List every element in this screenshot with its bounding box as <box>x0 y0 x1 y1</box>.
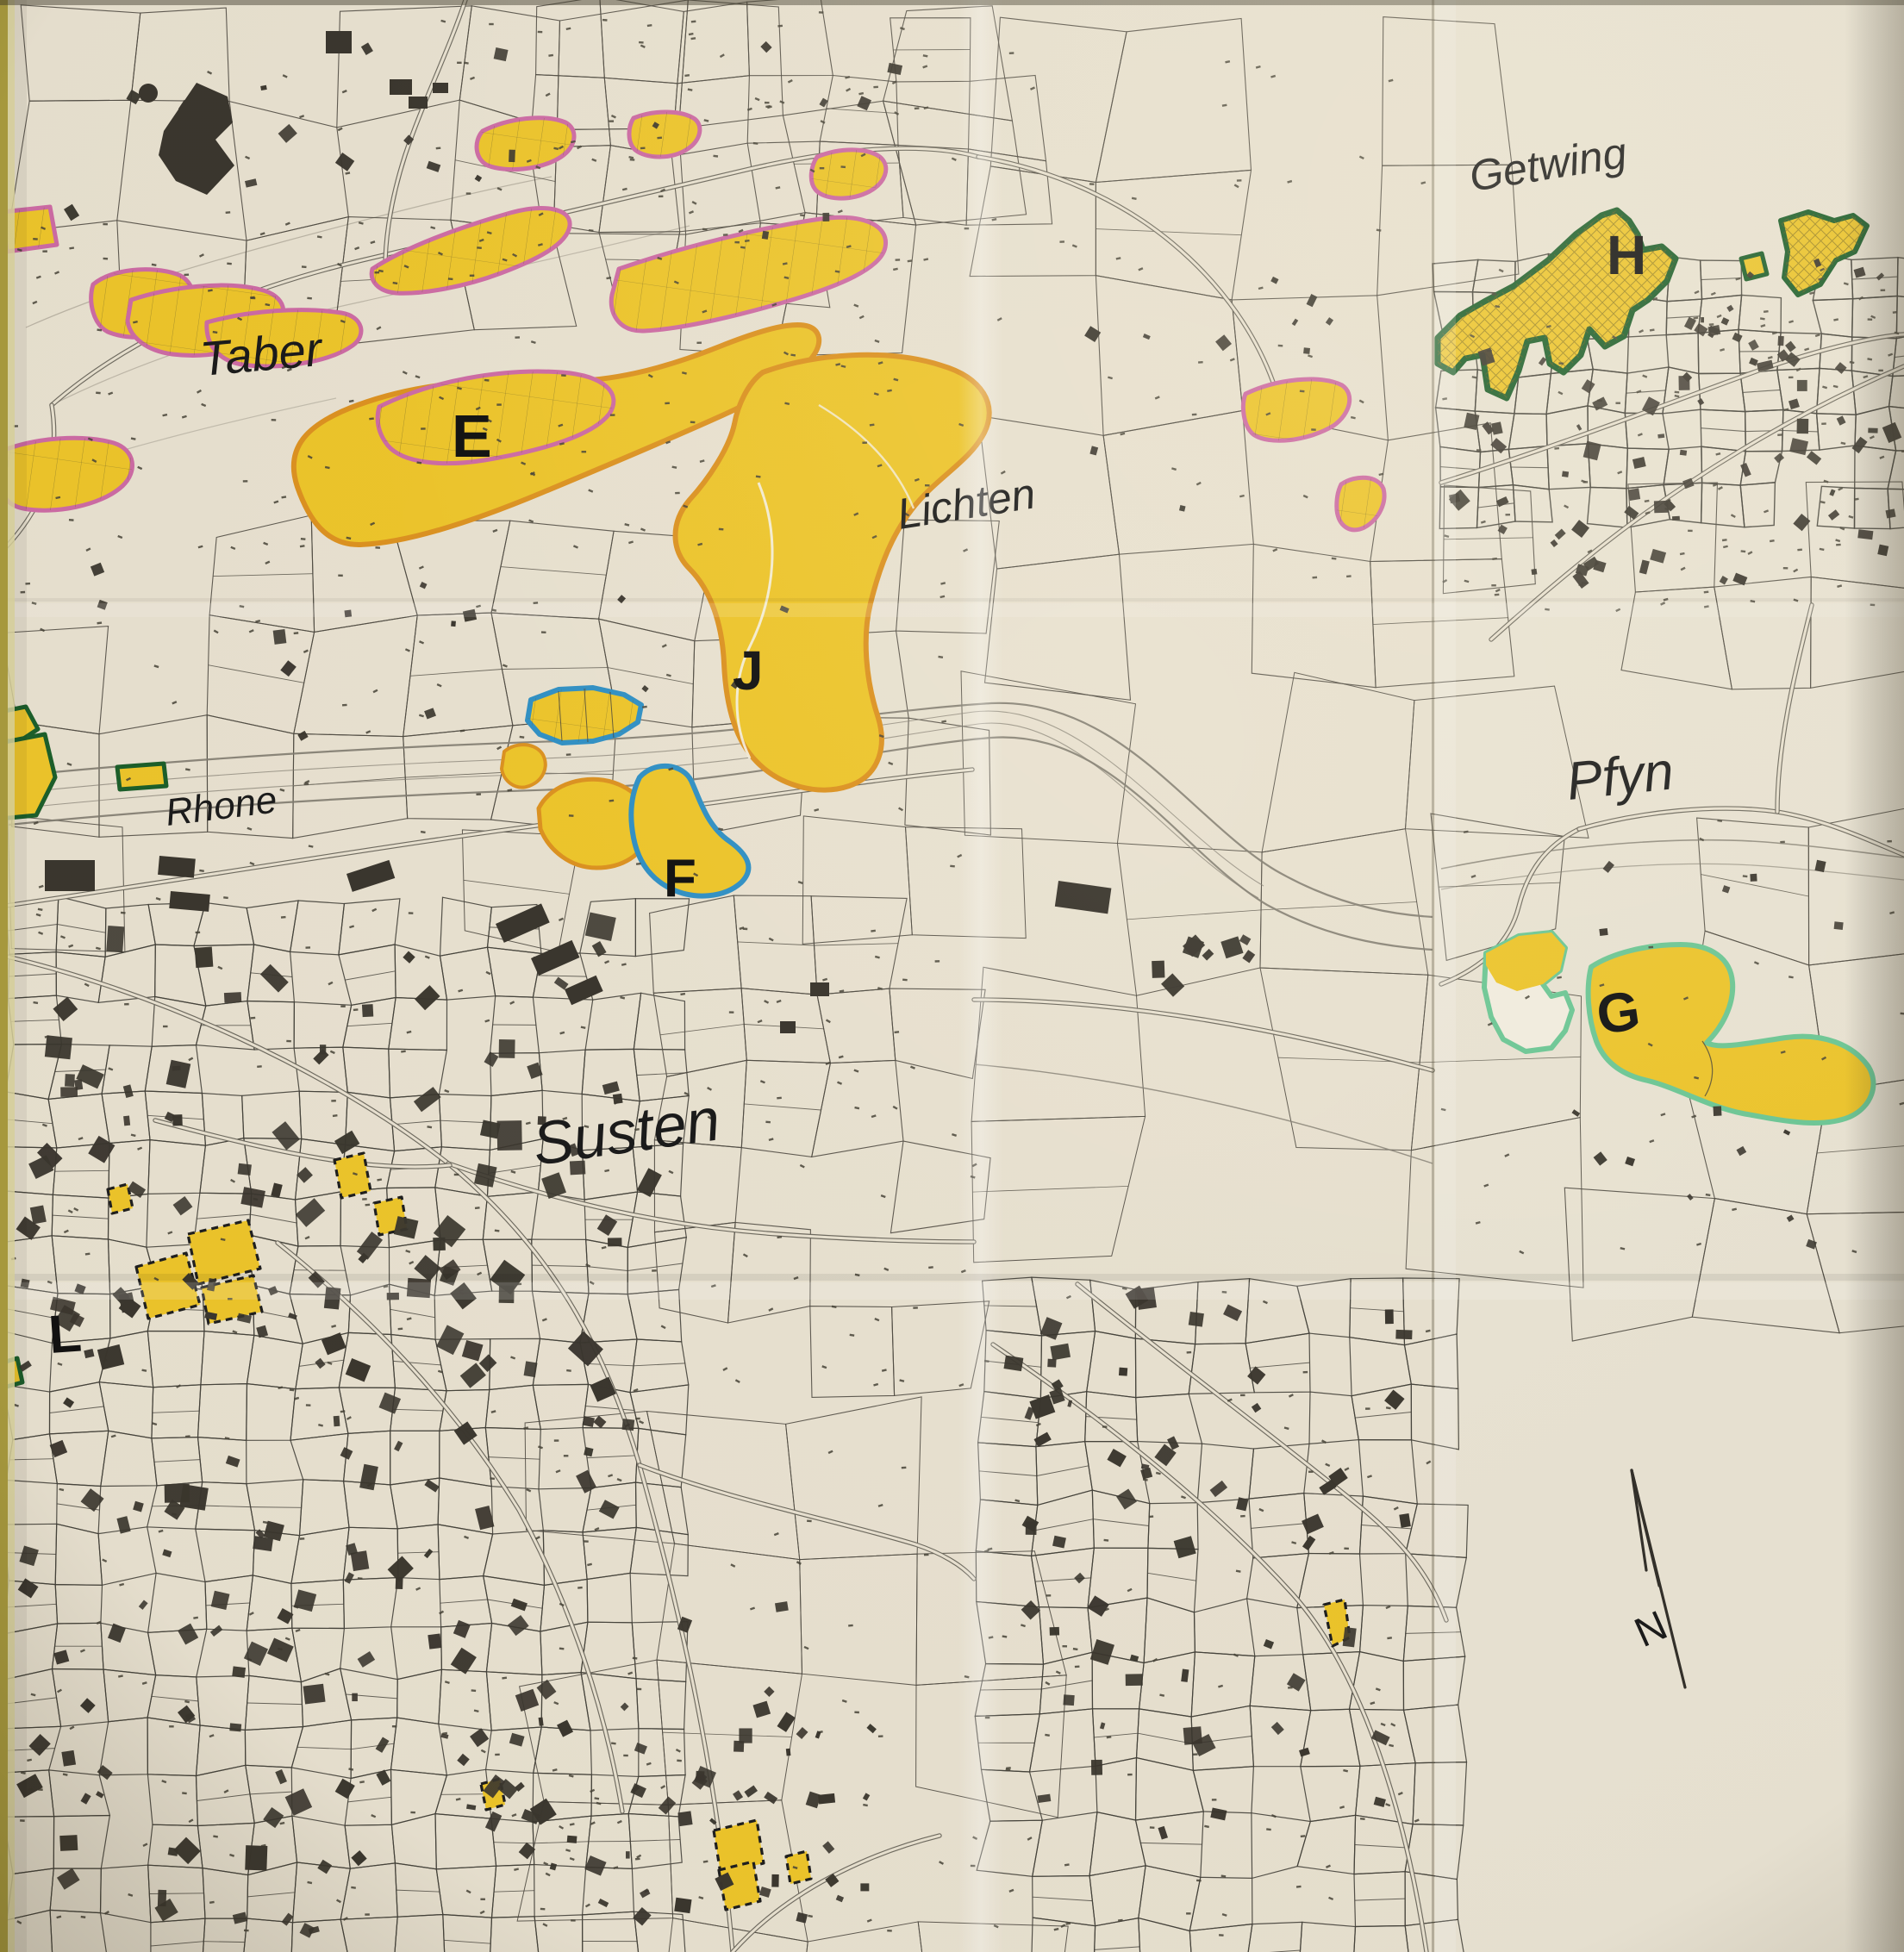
paper-folds-and-vignette <box>0 0 1904 1952</box>
folded-cadastral-map-photo: Taber Lichten Getwing Rhone Pfyn Susten … <box>0 0 1904 1952</box>
cadastral-map: Taber Lichten Getwing Rhone Pfyn Susten … <box>0 0 1904 1952</box>
